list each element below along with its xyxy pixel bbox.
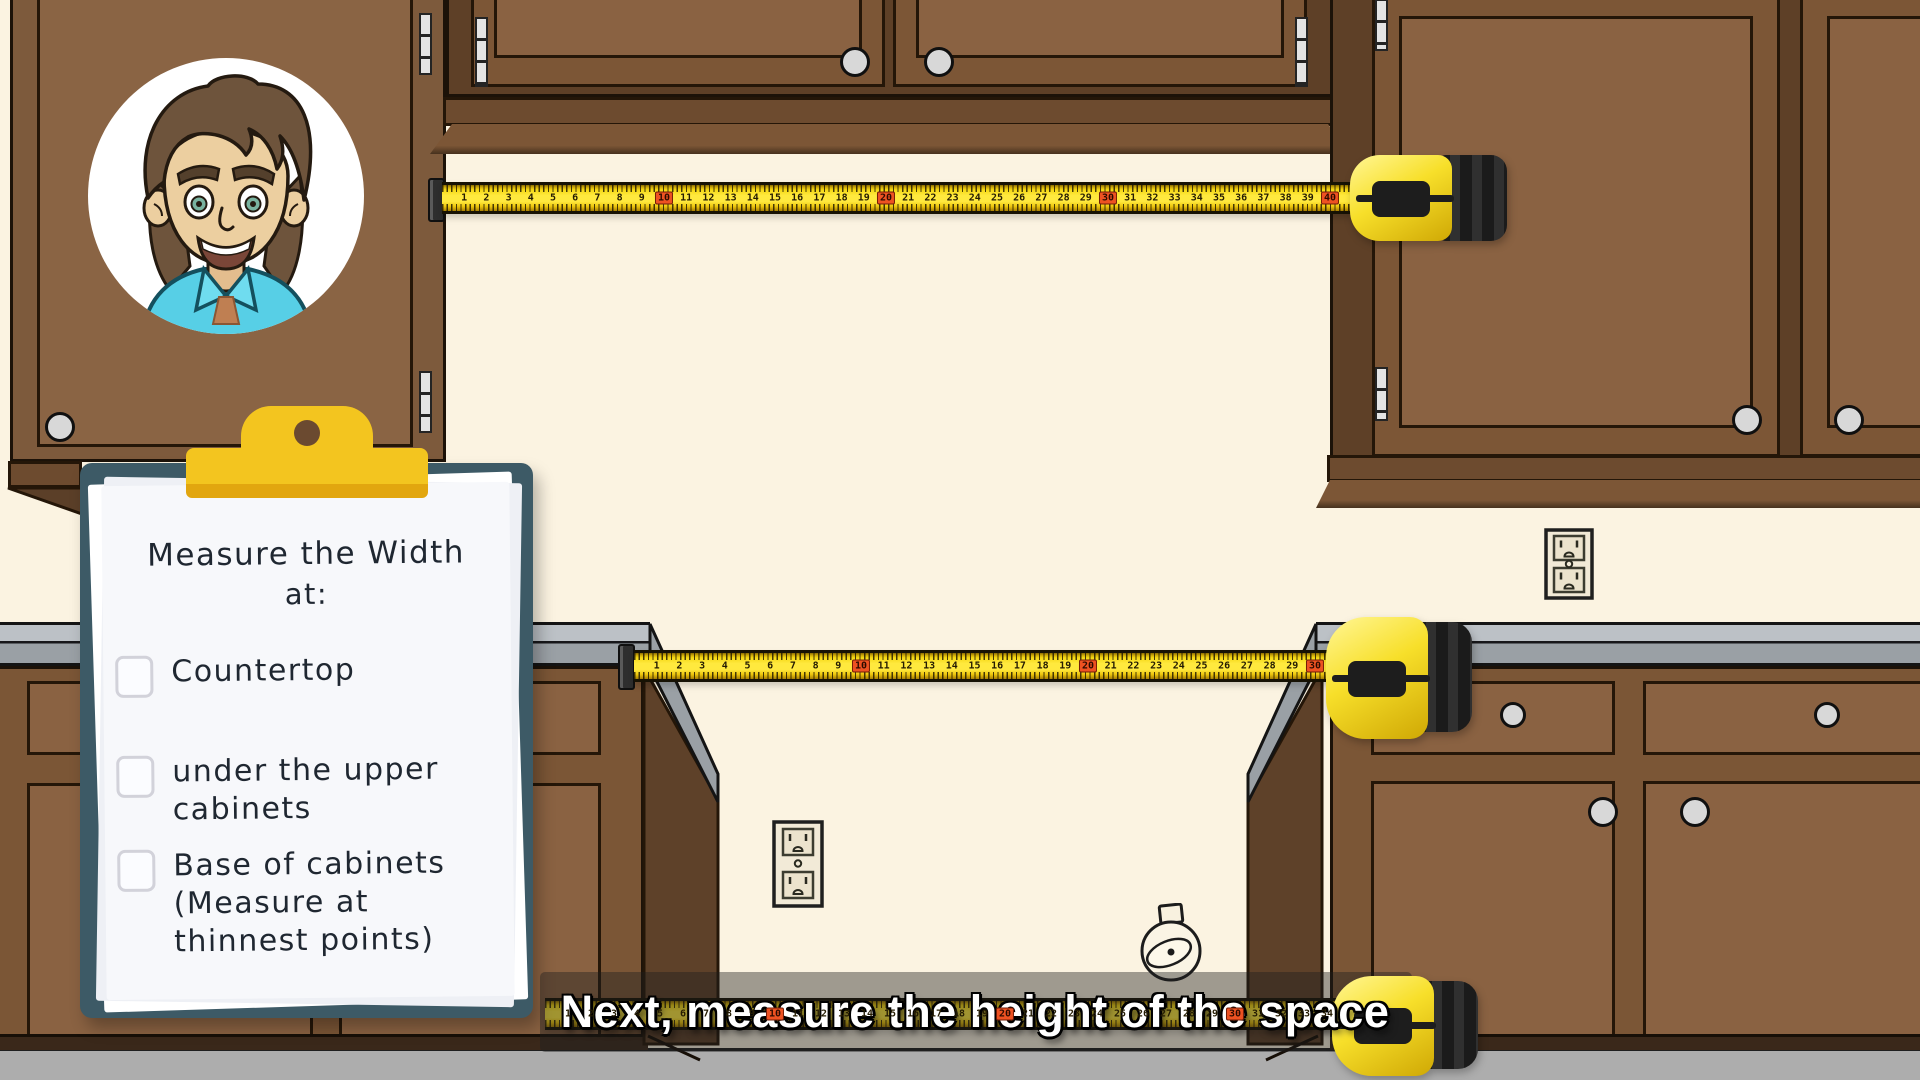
checklist-item: Base of cabinets(Measure atthinnest poin… [117,844,497,848]
checklist-item-label: under the uppercabinets [172,751,439,830]
checklist-title: Measure the Width at: [102,532,511,616]
checklist-item-label: Base of cabinets(Measure atthinnest poin… [173,845,446,962]
checklist-item: under the uppercabinets [116,750,496,754]
upper-left-molding-wedge [8,488,82,514]
tape-measure-top: 1234567891011121314151617181920212223242… [442,182,1352,214]
tape-measure-body [1350,155,1507,241]
checklist-title-line2: at: [102,572,510,616]
kitchen-illustration-scene: 1234567891011121314151617181920212223242… [0,0,1920,1080]
checkbox [115,656,153,698]
tape-measure-middle: 1234567891011121314151617181920212223242… [634,650,1330,682]
tape-measure-sketch-icon [1135,903,1207,983]
checkbox [116,756,154,798]
tape-measure-body [1326,617,1472,739]
checkbox [117,850,155,892]
checklist-item-label: Countertop [171,652,355,692]
clipboard-paper: Measure the Width at: Countertop under t… [101,482,514,1000]
tape-hook [618,644,635,690]
clip-hole [294,420,320,446]
clipboard-clip [186,406,428,496]
checklist-item: Countertop [115,650,495,654]
checklist-title-line1: Measure the Width [102,532,510,576]
cartoon-man-avatar [86,56,366,336]
